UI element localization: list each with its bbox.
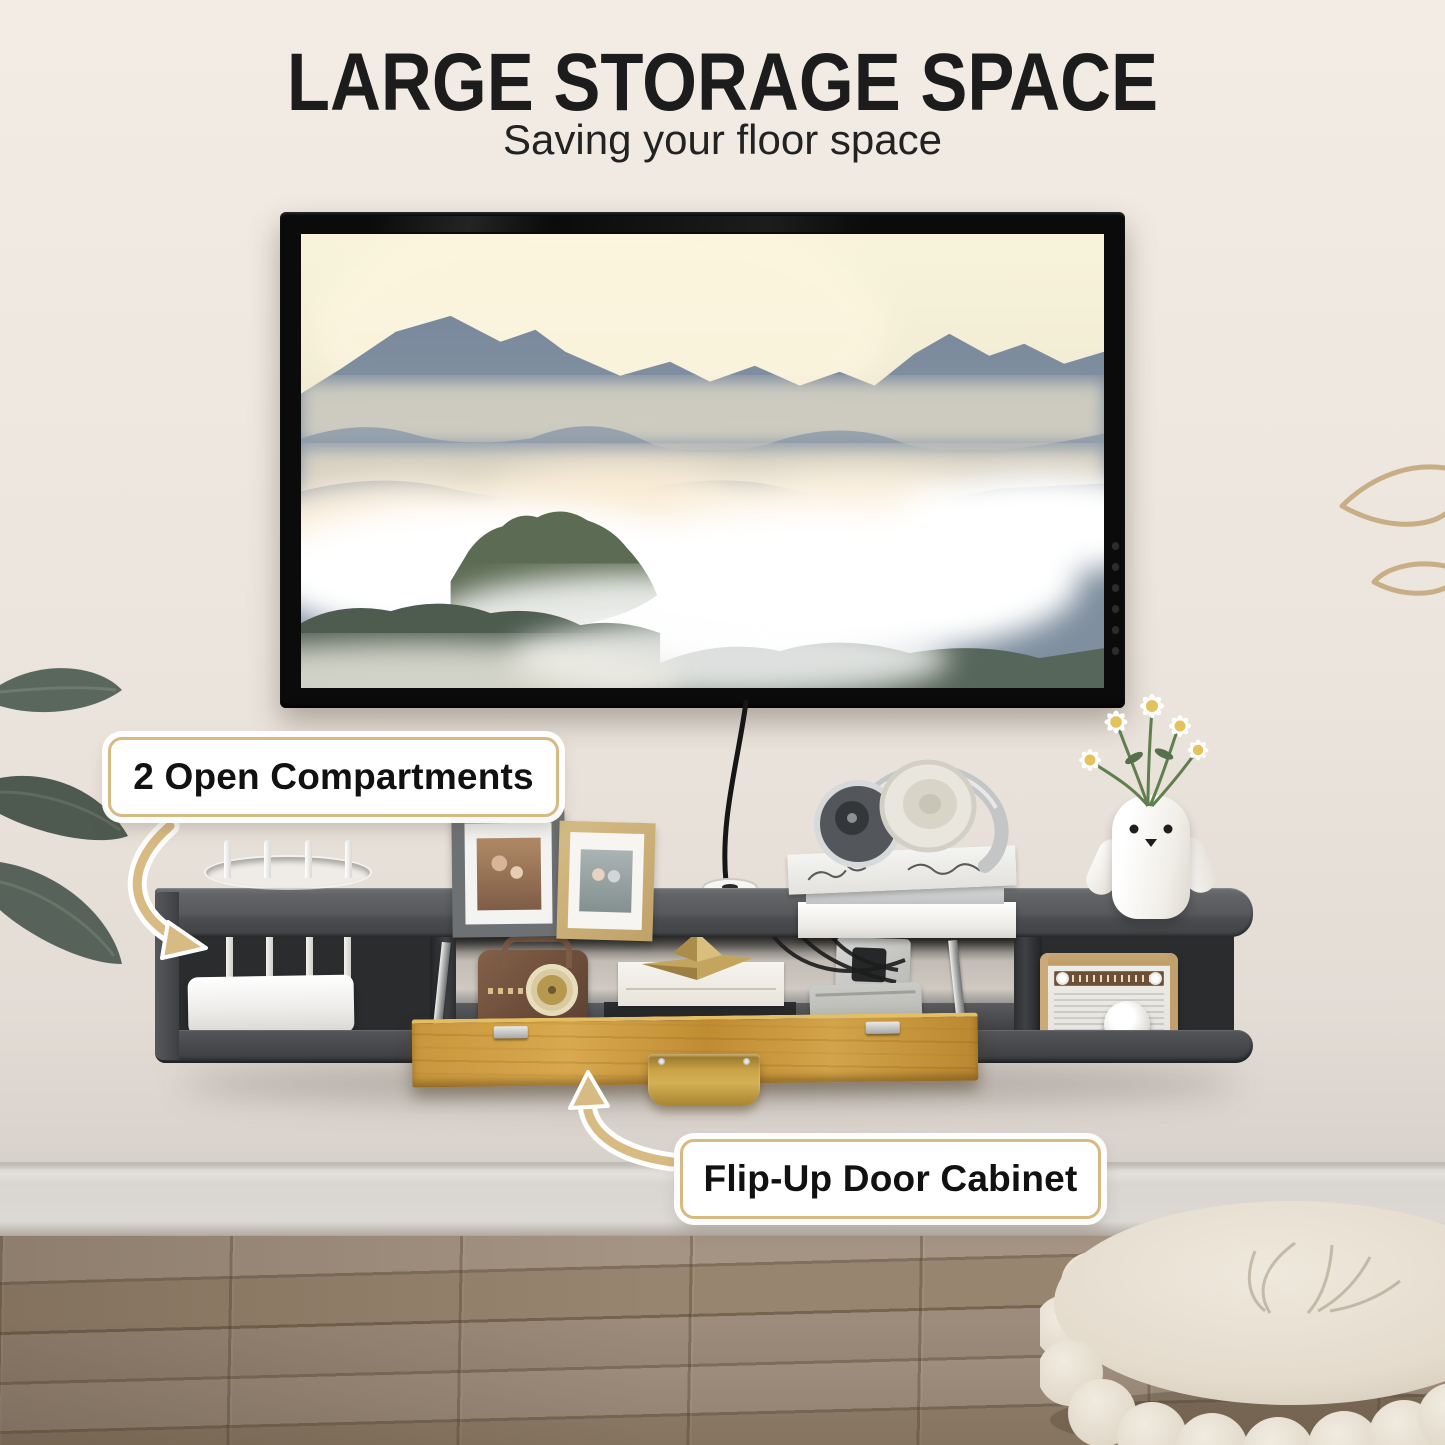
shelf-left-side-panel	[155, 892, 179, 1060]
callout-flip-up-door: Flip-Up Door Cabinet	[680, 1139, 1101, 1219]
callout-flip-up-door-label: Flip-Up Door Cabinet	[704, 1158, 1078, 1200]
door-hinge-plate	[866, 1021, 900, 1033]
door-handle-gold	[648, 1054, 760, 1106]
callout-open-compartments-label: 2 Open Compartments	[133, 756, 534, 798]
router-antenna	[224, 840, 231, 878]
router-antenna	[345, 840, 352, 878]
plant-leaves	[0, 630, 160, 1070]
picture-frame-gold	[556, 821, 655, 942]
tv-screen	[301, 234, 1104, 688]
couple-photo	[579, 849, 633, 912]
door-hinge-plate	[494, 1026, 528, 1038]
tv-landscape-image	[301, 234, 1104, 688]
radio-small-knob	[1149, 972, 1162, 985]
headphones	[808, 752, 1022, 884]
picture-frame-gray	[451, 809, 565, 937]
bunny-vase	[1112, 795, 1190, 919]
wifi-router	[188, 975, 355, 1036]
floor-pouf	[1040, 1185, 1445, 1445]
book-stack-bottom	[798, 902, 1016, 938]
callout-open-compartments: 2 Open Compartments	[108, 737, 559, 817]
family-photo	[476, 837, 541, 910]
tv-control-buttons	[1111, 542, 1119, 672]
shelf-top-panel	[155, 888, 1253, 937]
wire-wall-decor	[1318, 448, 1445, 618]
radio-tuner-display	[1054, 971, 1164, 986]
router-antenna	[305, 840, 312, 878]
radio-buttons	[488, 988, 524, 994]
bluetooth-radio	[1040, 953, 1178, 1041]
radio-dial-knob	[526, 964, 578, 1016]
radio-small-knob	[1056, 972, 1069, 985]
daisy-flowers	[1068, 688, 1228, 810]
router-antenna	[264, 840, 271, 878]
product-showcase-image: LARGE STORAGE SPACE Saving your floor sp…	[0, 0, 1445, 1445]
page-subtitle: Saving your floor space	[0, 116, 1445, 164]
shelf-divider-right	[1014, 935, 1042, 1033]
wall-mounted-tv	[280, 212, 1125, 708]
